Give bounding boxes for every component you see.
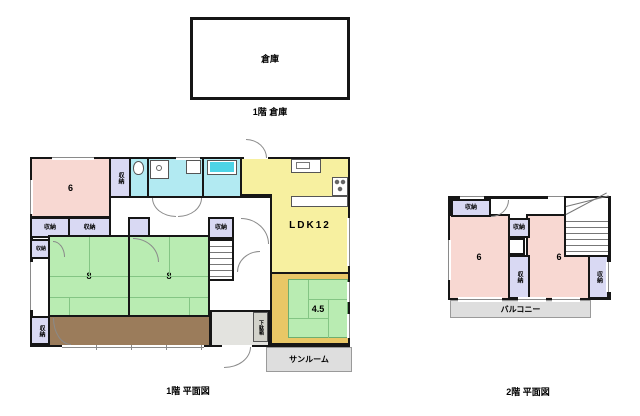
floor1-tatami-small: 4.5	[288, 279, 348, 338]
door-arc	[224, 347, 251, 368]
warehouse-caption: 1階 倉庫	[190, 105, 350, 118]
stove-burners	[334, 179, 346, 194]
vanity-basin-icon	[156, 165, 162, 171]
tatami-line	[308, 280, 309, 319]
storage-label: 収納	[83, 225, 95, 231]
tatami-line	[69, 297, 70, 315]
storage-label: 収納	[44, 225, 56, 231]
window	[606, 262, 611, 292]
floor1-west-room-label: 6	[68, 183, 73, 193]
window	[28, 262, 33, 310]
window	[347, 282, 352, 302]
floor2-storage-b: 収納	[508, 218, 530, 238]
storage-label: 収納	[596, 271, 602, 283]
tatami-line	[50, 276, 128, 277]
window	[458, 297, 502, 302]
storage-label: 収納	[516, 271, 522, 283]
floor1-storage-a: 収納	[109, 157, 131, 198]
window	[552, 297, 580, 302]
floor2-room-left: 6	[448, 214, 510, 300]
floor1-ldk-label: LDK12	[270, 220, 350, 231]
door-arc	[246, 139, 267, 158]
tatami-line	[289, 318, 329, 319]
bathtub-water	[210, 162, 234, 172]
window	[347, 218, 352, 266]
tatami-line	[50, 297, 128, 298]
floor2-cabinet	[508, 238, 525, 255]
floor1-veranda	[48, 315, 211, 347]
window	[518, 297, 546, 302]
floor1-caption: 1階 平面図	[118, 384, 258, 397]
shoe-cabinet-label: 下駄箱	[258, 320, 263, 335]
floor1-sunroom: サンルーム	[266, 347, 352, 372]
storage-label: 収納	[513, 225, 525, 231]
wall-segment	[240, 194, 272, 198]
floor2-room-left-label: 6	[476, 252, 481, 262]
window	[28, 180, 33, 214]
sunroom-label: サンルーム	[289, 354, 329, 365]
floor1-shoe-cabinet: 下駄箱	[253, 312, 268, 342]
floor1-tatami-small-label: 4.5	[312, 304, 325, 314]
warehouse-label: 倉庫	[261, 52, 279, 65]
sliding-window	[62, 345, 204, 350]
floor2-caption: 2階 平面図	[458, 385, 598, 398]
storage-label: 収納	[465, 205, 477, 211]
storage-label: 収納	[215, 225, 227, 231]
tatami-line	[189, 297, 190, 315]
window	[347, 314, 352, 338]
floor2-balcony: バルコニー	[450, 300, 591, 318]
kitchen-sink-bowl	[296, 162, 310, 169]
washer-pan-icon	[186, 160, 201, 174]
floor1-west-room: 6	[30, 157, 111, 218]
toilet-icon	[133, 161, 144, 175]
window	[446, 240, 451, 280]
warehouse-outline: 倉庫	[190, 17, 350, 100]
storage-label: 収納	[36, 247, 46, 252]
floor1-ldk-main	[270, 196, 350, 274]
floor1-staircase	[208, 239, 234, 281]
balcony-label: バルコニー	[501, 304, 541, 315]
floor2-storage-a: 収納	[451, 199, 491, 217]
floor2-storage-c: 収納	[508, 255, 530, 299]
tatami-line	[130, 297, 208, 298]
tatami-line	[328, 299, 329, 338]
floor2-room-right-label: 6	[556, 252, 561, 262]
storage-label: 収納	[38, 325, 44, 337]
window	[548, 194, 564, 199]
storage-label: 収納	[117, 172, 123, 184]
floor-plan-sheet: 倉庫 1階 倉庫 6 収納 LDK12 収納 収納 収納 収納	[0, 0, 640, 416]
window	[176, 155, 200, 160]
window	[460, 194, 484, 199]
tatami-line	[130, 276, 208, 277]
kitchen-counter	[291, 196, 348, 207]
tatami-line	[169, 237, 170, 276]
floor1-storage-f: 収納	[208, 217, 234, 239]
tatami-line	[89, 237, 90, 276]
window	[52, 155, 94, 160]
